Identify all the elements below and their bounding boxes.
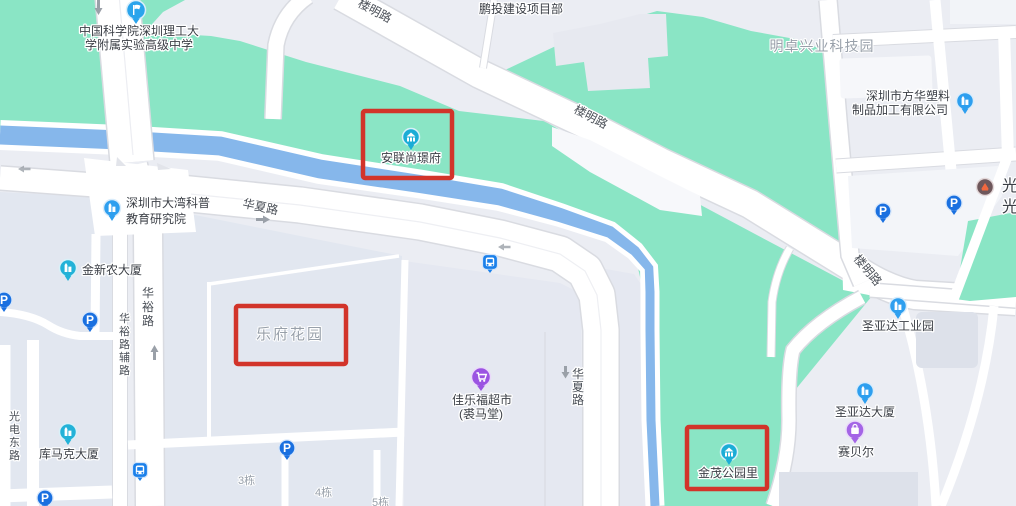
svg-text:佳乐福超市: 佳乐福超市 [452, 392, 512, 407]
svg-text:乐府花园: 乐府花园 [256, 326, 324, 343]
svg-text:裕: 裕 [119, 325, 130, 338]
svg-text:鹏投建设项目部: 鹏投建设项目部 [479, 1, 563, 16]
svg-text:辅: 辅 [119, 350, 130, 364]
svg-text:学附属实验高级中学: 学附属实验高级中学 [85, 37, 193, 52]
svg-text:深圳市方华塑料: 深圳市方华塑料 [866, 88, 950, 103]
svg-text:中国科学院深圳理工大: 中国科学院深圳理工大 [79, 23, 199, 38]
svg-text:P: P [86, 313, 94, 327]
svg-text:圣亚达工业园: 圣亚达工业园 [862, 319, 934, 333]
svg-text:电: 电 [9, 423, 20, 436]
svg-text:路: 路 [142, 313, 154, 328]
svg-text:路: 路 [9, 449, 20, 462]
svg-text:深圳市大湾科普: 深圳市大湾科普 [126, 195, 210, 210]
svg-text:安联尚璟府: 安联尚璟府 [381, 150, 441, 165]
svg-text:教育研究院: 教育研究院 [126, 211, 186, 226]
svg-text:路: 路 [119, 338, 130, 351]
svg-text:P: P [0, 293, 8, 307]
svg-text:P: P [879, 204, 887, 218]
svg-text:夏: 夏 [572, 380, 584, 394]
svg-text:东: 东 [9, 436, 20, 449]
svg-text:3栋: 3栋 [238, 473, 255, 487]
svg-text:P: P [41, 491, 49, 505]
svg-text:华: 华 [572, 367, 584, 381]
svg-text:路: 路 [119, 364, 130, 377]
svg-text:光: 光 [1002, 198, 1016, 216]
svg-text:明卓兴业科技园: 明卓兴业科技园 [770, 38, 875, 54]
svg-text:金新农大厦: 金新农大厦 [82, 262, 142, 277]
svg-text:库马克大厦: 库马克大厦 [39, 446, 99, 461]
svg-text:P: P [950, 196, 958, 210]
svg-text:赛贝尔: 赛贝尔 [838, 444, 874, 459]
svg-text:光: 光 [9, 409, 20, 423]
svg-text:P: P [283, 441, 291, 455]
svg-text:制品加工有限公司: 制品加工有限公司 [852, 103, 948, 117]
svg-text:4栋: 4栋 [315, 485, 332, 499]
svg-text:光: 光 [1002, 177, 1016, 195]
svg-text:裕: 裕 [142, 299, 154, 314]
svg-text:路: 路 [572, 392, 584, 407]
svg-text:(裘马堂): (裘马堂) [459, 407, 503, 421]
svg-text:华: 华 [119, 311, 130, 325]
svg-text:华: 华 [142, 286, 154, 300]
svg-text:圣亚达大厦: 圣亚达大厦 [835, 405, 895, 419]
svg-text:金茂公园里: 金茂公园里 [698, 465, 758, 480]
svg-text:5栋: 5栋 [372, 495, 389, 506]
